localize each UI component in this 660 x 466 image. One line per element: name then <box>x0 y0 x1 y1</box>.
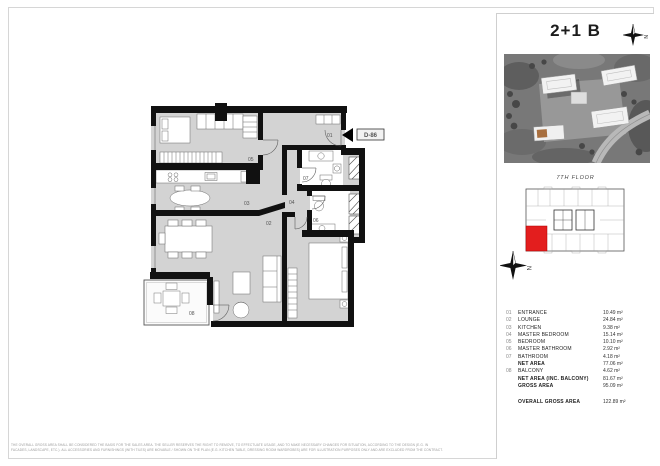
wardrobe-strip-icon <box>160 152 222 163</box>
shaft-boxes <box>349 157 360 234</box>
tv-unit-icon <box>214 281 219 313</box>
disclaimer-line-2: FACADES, LANDSCAPE, ETC.). ALL ACCESSORI… <box>11 448 489 453</box>
aerial-photo <box>504 54 650 163</box>
disclaimer-text: THE OVERALL GROSS AREA SHALL BE CONSIDER… <box>11 443 489 452</box>
key-plan <box>520 186 630 258</box>
room-label-master-bedroom: 04 <box>289 200 295 206</box>
area-table: 01ENTRANCE10.49 m² 02LOUNGE24.84 m² 03KI… <box>506 310 648 407</box>
disclaimer-line-1: THE OVERALL GROSS AREA SHALL BE CONSIDER… <box>11 443 489 448</box>
side-panel: 2+1 B N <box>496 13 654 459</box>
highlighted-unit <box>526 226 547 251</box>
room-label-kitchen: 03 <box>244 201 250 207</box>
room-label-bedroom: 05 <box>248 157 254 163</box>
room-label-bathroom: 07 <box>303 176 309 182</box>
table-row: 07BATHROOM4.18 m² <box>506 354 648 361</box>
stove-icon <box>168 173 172 177</box>
compass-icon: N <box>500 250 534 282</box>
table-row-gross-area: GROSS AREA95.09 m² <box>506 383 648 390</box>
room-label-balcony: 08 <box>189 311 195 317</box>
table-row: 08BALCONY4.62 m² <box>506 368 648 375</box>
table-row: 01ENTRANCE10.49 m² <box>506 310 648 317</box>
compass-letter: N <box>642 35 648 39</box>
table-row-overall-gross-area: OVERALL GROSS AREA122.89 m² <box>506 399 648 406</box>
table-row: 06MASTER BATHROOM2.92 m² <box>506 346 648 353</box>
unit-code-tag: D-86 <box>357 129 384 140</box>
room-label-entrance: 01 <box>327 133 333 139</box>
kitchen-table-icon <box>170 190 210 206</box>
master-wardrobe-icon <box>288 268 297 318</box>
entrance-closet-icon <box>316 115 340 124</box>
compass-icon: N <box>623 23 649 47</box>
floor-plan: 01 02 03 04 05 06 07 08 D-86 <box>140 100 400 340</box>
room-label-master-bathroom: 06 <box>313 218 319 224</box>
toilet-icon <box>313 196 325 201</box>
room-label-lounge: 02 <box>266 221 272 227</box>
compass-letter: N <box>525 266 531 270</box>
table-row-net-area-inc-balcony: NET AREA (INC. BALCONY)81.67 m² <box>506 376 648 383</box>
unit-code-text: D-86 <box>364 133 378 139</box>
dining-table-icon <box>165 226 212 252</box>
table-row: 04MASTER BEDROOM15.14 m² <box>506 332 648 339</box>
table-row-net-area: NET AREA77.06 m² <box>506 361 648 368</box>
coffee-table-icon <box>233 272 250 294</box>
floorplan-page: { "panel": { "unit_type": "2+1 B", "floo… <box>0 0 660 466</box>
floor-label: 7TH FLOOR <box>497 175 654 181</box>
table-row: 03KITCHEN9.38 m² <box>506 325 648 332</box>
table-row: 05BEDROOM10.10 m² <box>506 339 648 346</box>
sofa-icon <box>263 256 281 302</box>
balcony <box>144 280 209 325</box>
table-row: 02LOUNGE24.84 m² <box>506 317 648 324</box>
